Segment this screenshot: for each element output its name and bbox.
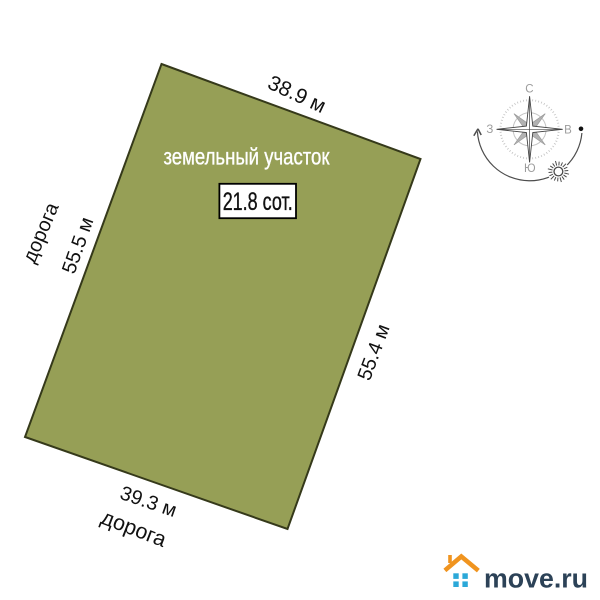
svg-text:Ю: Ю [524,163,536,175]
svg-text:move.ru: move.ru [484,564,588,594]
svg-text:земельный участок: земельный участок [164,144,331,170]
svg-text:С: С [525,84,533,96]
svg-text:21.8 сот.: 21.8 сот. [223,188,293,216]
svg-text:В: В [564,124,572,136]
svg-text:З: З [486,124,493,136]
svg-text:дорога: дорога [19,199,64,266]
